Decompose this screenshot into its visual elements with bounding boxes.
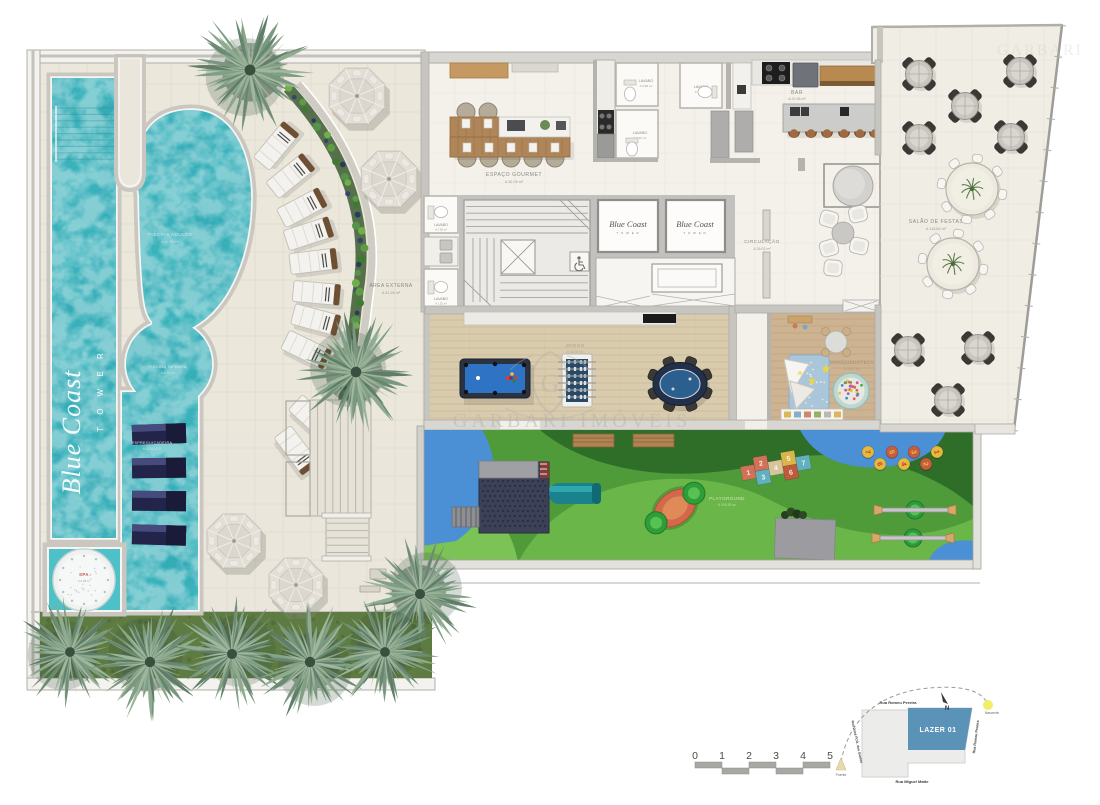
svg-text:LAZER 01: LAZER 01 [919, 727, 956, 734]
svg-text:A 6.10 m²: A 6.10 m² [78, 579, 90, 583]
svg-text:A 22.96 m²: A 22.96 m² [788, 97, 806, 101]
svg-text:PISCINA INFANTIL: PISCINA INFANTIL [148, 364, 188, 369]
svg-text:LAVABO: LAVABO [633, 131, 648, 135]
svg-text:SALÃO DE FESTAS: SALÃO DE FESTAS [909, 218, 964, 225]
svg-text:Blue Coast: Blue Coast [609, 219, 647, 229]
svg-text:Rua Miguel Matte: Rua Miguel Matte [896, 779, 930, 784]
svg-text:LAVABO: LAVABO [434, 297, 448, 301]
svg-text:G: G [541, 369, 560, 398]
svg-text:MOLHADA: MOLHADA [143, 447, 162, 451]
svg-text:T O W E R: T O W E R [616, 231, 639, 235]
svg-text:ÁREA EXTERNA: ÁREA EXTERNA [369, 282, 412, 289]
svg-text:GARBARI: GARBARI [997, 42, 1083, 59]
svg-text:4: 4 [800, 750, 806, 762]
svg-text:SPA: SPA [79, 572, 89, 577]
svg-text:GARBARI IMÓVEIS: GARBARI IMÓVEIS [453, 408, 691, 432]
svg-text:N: N [945, 706, 949, 712]
svg-text:PLAYGROUND: PLAYGROUND [709, 496, 745, 501]
svg-text:Nascente: Nascente [985, 711, 999, 715]
svg-text:A 1.52 m²: A 1.52 m² [435, 228, 447, 232]
svg-text:A 8.46 m²: A 8.46 m² [161, 371, 176, 375]
svg-text:BAR: BAR [791, 90, 803, 96]
svg-text:3: 3 [773, 750, 779, 762]
svg-text:A 84.93 m²: A 84.93 m² [161, 240, 179, 244]
svg-text:A 3.66 m²: A 3.66 m² [640, 84, 653, 88]
svg-text:CIRCULAÇÃO: CIRCULAÇÃO [744, 238, 779, 245]
svg-text:A 105.39 m²: A 105.39 m² [718, 503, 737, 507]
svg-text:A 41.26 m²: A 41.26 m² [382, 291, 401, 295]
svg-text:A 26.02 m²: A 26.02 m² [753, 247, 771, 251]
svg-text:T O W E R: T O W E R [96, 348, 105, 432]
svg-text:A 116.64 m²: A 116.64 m² [926, 227, 947, 231]
svg-text:A 18.67 m²: A 18.67 m² [844, 367, 861, 371]
svg-text:2: 2 [746, 750, 752, 762]
svg-text:1: 1 [719, 750, 725, 762]
svg-text:Blue Coast: Blue Coast [57, 370, 86, 495]
svg-text:BRINQUEDOTECA: BRINQUEDOTECA [830, 360, 875, 365]
svg-text:PISCINA ADULTO: PISCINA ADULTO [148, 232, 192, 237]
svg-text:A 32.09 m²: A 32.09 m² [505, 180, 524, 184]
svg-text:0: 0 [692, 750, 698, 762]
svg-text:T O W E R: T O W E R [683, 231, 706, 235]
svg-text:JOGOS: JOGOS [565, 343, 584, 349]
svg-text:5: 5 [827, 750, 833, 762]
svg-text:LAVABO: LAVABO [434, 223, 448, 227]
svg-text:Blue Coast: Blue Coast [676, 219, 714, 229]
svg-text:ESPAÇO GOURMET: ESPAÇO GOURMET [486, 172, 543, 178]
svg-text:A 1.52 m²: A 1.52 m² [435, 302, 447, 306]
svg-text:Rua Romeu Pereira: Rua Romeu Pereira [880, 700, 918, 705]
svg-text:A 42.92 m²: A 42.92 m² [567, 350, 584, 354]
svg-text:ESPREGUIÇADEIRA: ESPREGUIÇADEIRA [132, 441, 173, 445]
svg-text:LAVABO: LAVABO [639, 79, 654, 83]
svg-text:Poente: Poente [836, 773, 847, 777]
